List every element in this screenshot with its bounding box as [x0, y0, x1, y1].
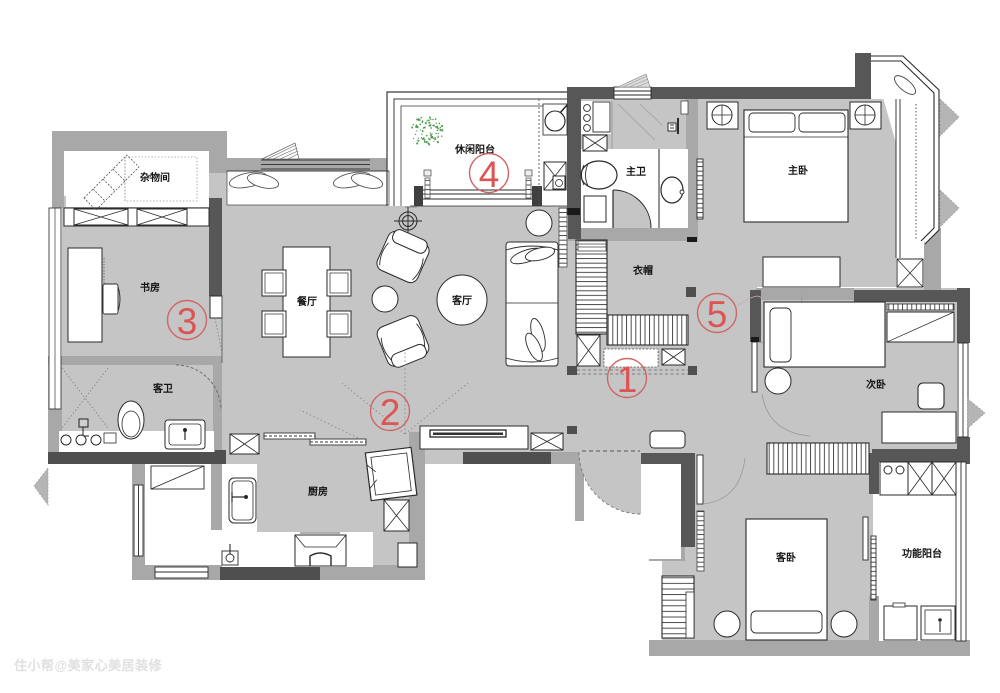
svg-text:次卧: 次卧	[866, 378, 886, 391]
svg-text:住小帮@美家心美居装修: 住小帮@美家心美居装修	[14, 658, 163, 673]
svg-text:杂物间: 杂物间	[140, 171, 170, 184]
svg-text:主卫: 主卫	[626, 165, 646, 178]
svg-text:书房: 书房	[140, 281, 160, 294]
svg-text:5: 5	[707, 294, 728, 335]
svg-text:客卧: 客卧	[775, 551, 796, 564]
svg-text:功能阳台: 功能阳台	[902, 547, 942, 560]
svg-text:客卫: 客卫	[152, 382, 173, 395]
svg-text:主卧: 主卧	[788, 164, 808, 177]
svg-text:衣帽: 衣帽	[633, 264, 653, 277]
svg-text:2: 2	[380, 392, 401, 433]
svg-text:餐厅: 餐厅	[296, 295, 317, 308]
svg-text:3: 3	[177, 301, 198, 342]
svg-text:厨房: 厨房	[308, 485, 328, 498]
svg-text:客厅: 客厅	[451, 294, 472, 307]
svg-text:1: 1	[617, 359, 638, 400]
svg-text:4: 4	[479, 154, 500, 195]
